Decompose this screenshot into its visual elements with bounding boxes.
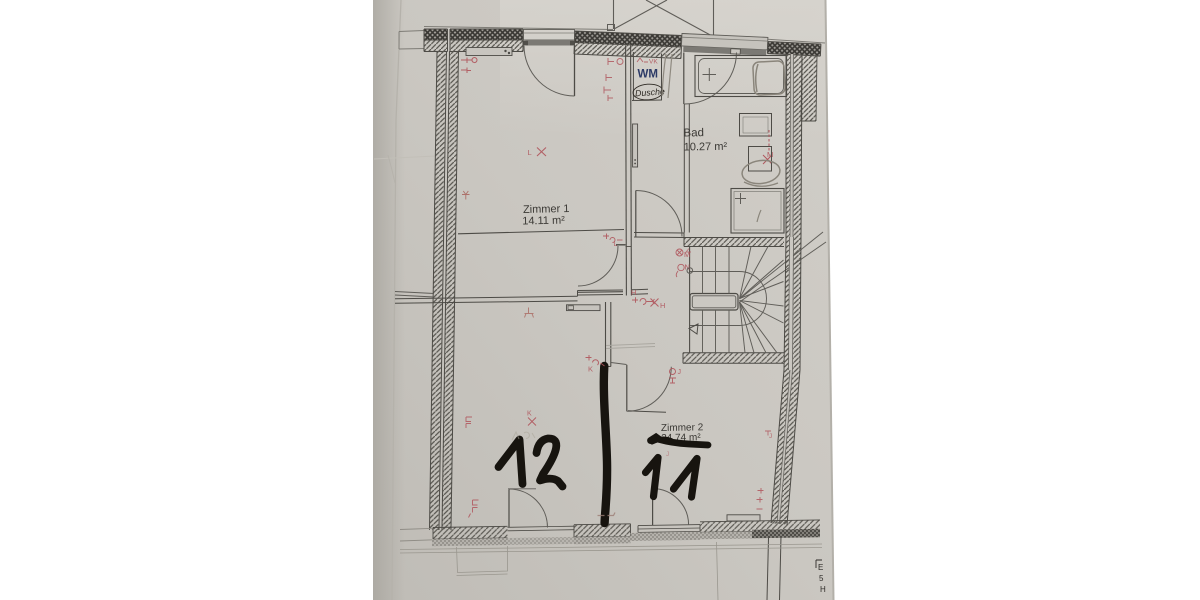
svg-text:H: H xyxy=(660,301,665,310)
svg-text:J: J xyxy=(666,451,669,458)
svg-text:14.11 m²: 14.11 m² xyxy=(522,215,565,228)
svg-text:H: H xyxy=(820,585,826,594)
svg-text:L: L xyxy=(528,148,532,157)
svg-text:L: L xyxy=(614,241,618,248)
svg-text:VK: VK xyxy=(649,59,658,66)
svg-text:H: H xyxy=(631,288,636,297)
svg-text:E: E xyxy=(818,563,823,572)
svg-text:Dusche: Dusche xyxy=(635,86,666,98)
svg-text:5: 5 xyxy=(819,574,824,583)
svg-text:K: K xyxy=(588,365,593,374)
svg-text:10.27 m²: 10.27 m² xyxy=(684,141,728,154)
svg-text:K: K xyxy=(527,411,532,418)
svg-text:J: J xyxy=(678,369,682,376)
svg-text:M: M xyxy=(767,150,773,159)
svg-text:J: J xyxy=(769,433,772,440)
svg-text:Bad: Bad xyxy=(683,127,704,139)
svg-text:WM: WM xyxy=(638,69,658,81)
